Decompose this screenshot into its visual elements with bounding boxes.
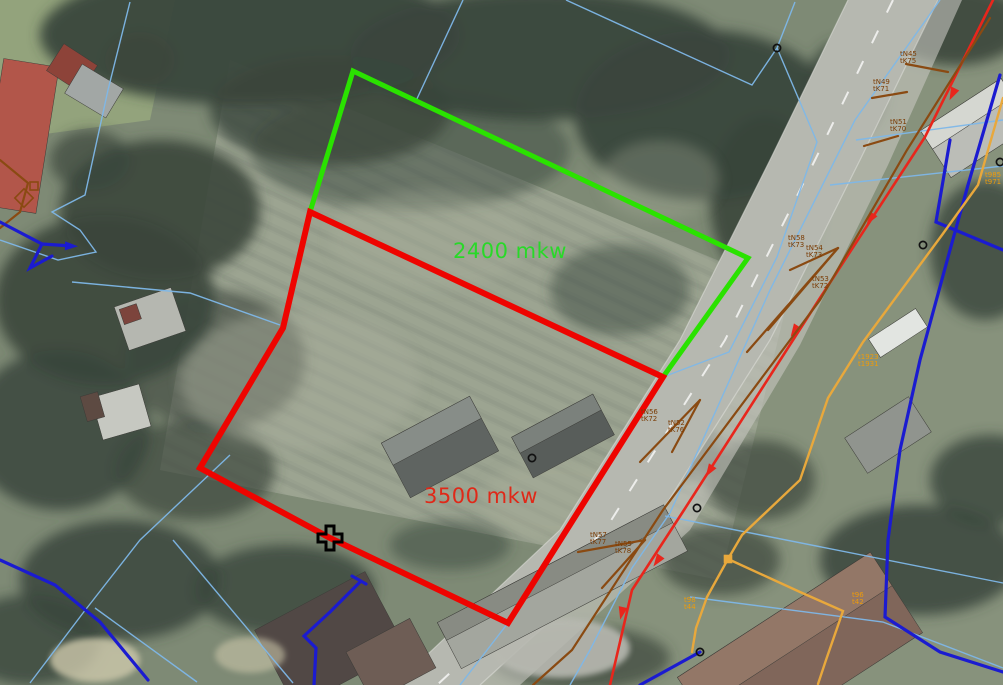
- utility-code-label: t98t44: [684, 596, 696, 611]
- utility-code-label: t985t971: [985, 171, 1001, 186]
- utility-code-label: tN57tK77: [590, 531, 607, 546]
- utility-code-label: tN55tK78: [615, 540, 632, 555]
- utility-code-label: tN49tK71: [873, 78, 890, 93]
- utility-code-label: t1923t1931: [858, 353, 879, 368]
- utility-code-label: tN56tK72: [641, 408, 658, 423]
- aerial-basemap[interactable]: 2400 mkw3500 mkw tN45tK75tN49tK71tN51tK7…: [0, 0, 1003, 685]
- utility-code-label: tN58tK73: [788, 234, 805, 249]
- utility-code-label: tN54tK73: [806, 244, 823, 259]
- gas-line-orange-node: [725, 556, 732, 563]
- terrain-layer: [0, 0, 1003, 685]
- utility-code-label: t96t42: [852, 591, 864, 606]
- utility-code-label: tN45tK75: [900, 50, 917, 65]
- map-viewport[interactable]: 2400 mkw3500 mkw tN45tK75tN49tK71tN51tK7…: [0, 0, 1003, 685]
- utility-code-label: tN51tK70: [890, 118, 907, 133]
- area-label-parcel-green: 2400 mkw: [453, 239, 567, 263]
- utility-code-label: tN52tK76: [668, 419, 685, 434]
- utility-code-label: tN53tK72: [812, 275, 829, 290]
- area-label-parcel-red: 3500 mkw: [424, 484, 538, 508]
